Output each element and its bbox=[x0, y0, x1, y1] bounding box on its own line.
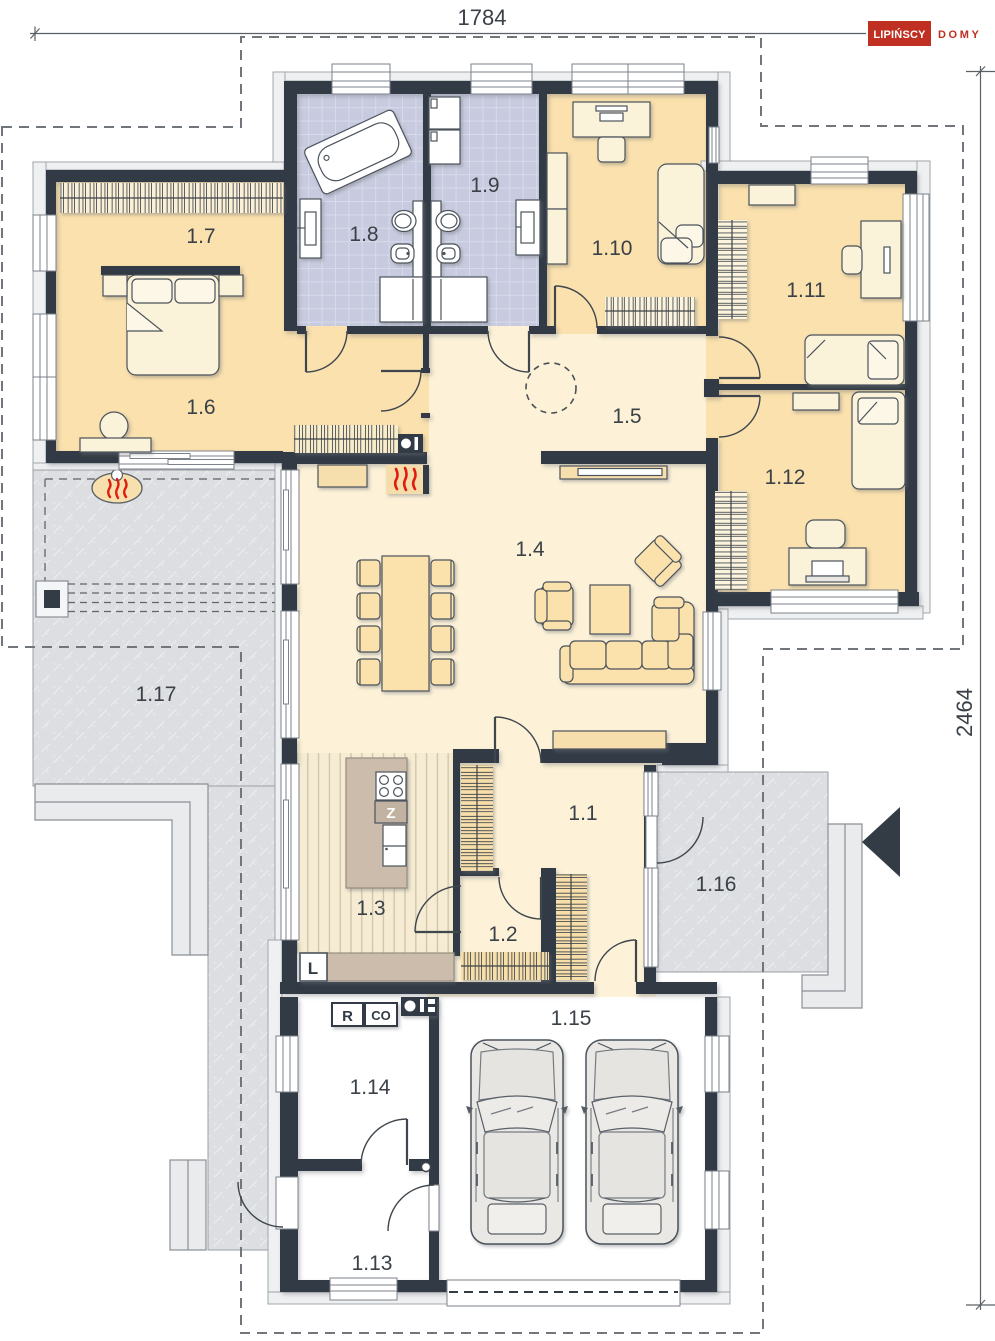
svg-text:L: L bbox=[308, 959, 318, 978]
svg-text:1.8: 1.8 bbox=[349, 223, 378, 246]
svg-text:1.12: 1.12 bbox=[765, 466, 806, 489]
svg-text:1.3: 1.3 bbox=[356, 897, 385, 920]
svg-text:1.6: 1.6 bbox=[186, 396, 215, 419]
svg-text:1.10: 1.10 bbox=[592, 237, 633, 260]
svg-text:1.17: 1.17 bbox=[136, 683, 177, 706]
svg-text:1.15: 1.15 bbox=[551, 1007, 592, 1030]
svg-text:CO: CO bbox=[371, 1008, 391, 1023]
svg-text:1.2: 1.2 bbox=[488, 923, 517, 946]
svg-text:Z: Z bbox=[386, 805, 395, 822]
svg-text:LIPIŃSCY: LIPIŃSCY bbox=[873, 28, 926, 41]
svg-text:1.4: 1.4 bbox=[515, 538, 545, 561]
svg-text:1.11: 1.11 bbox=[786, 279, 825, 302]
svg-text:DOMY: DOMY bbox=[938, 29, 981, 41]
svg-text:1.1: 1.1 bbox=[568, 802, 597, 825]
svg-text:1784: 1784 bbox=[458, 5, 507, 30]
svg-text:1.14: 1.14 bbox=[350, 1076, 391, 1099]
svg-text:1.16: 1.16 bbox=[696, 873, 737, 896]
svg-text:2464: 2464 bbox=[952, 688, 977, 737]
svg-text:1.9: 1.9 bbox=[470, 174, 499, 197]
svg-text:1.7: 1.7 bbox=[186, 225, 215, 248]
svg-text:R: R bbox=[342, 1008, 353, 1025]
svg-text:1.13: 1.13 bbox=[352, 1252, 393, 1275]
svg-text:1.5: 1.5 bbox=[612, 405, 641, 428]
